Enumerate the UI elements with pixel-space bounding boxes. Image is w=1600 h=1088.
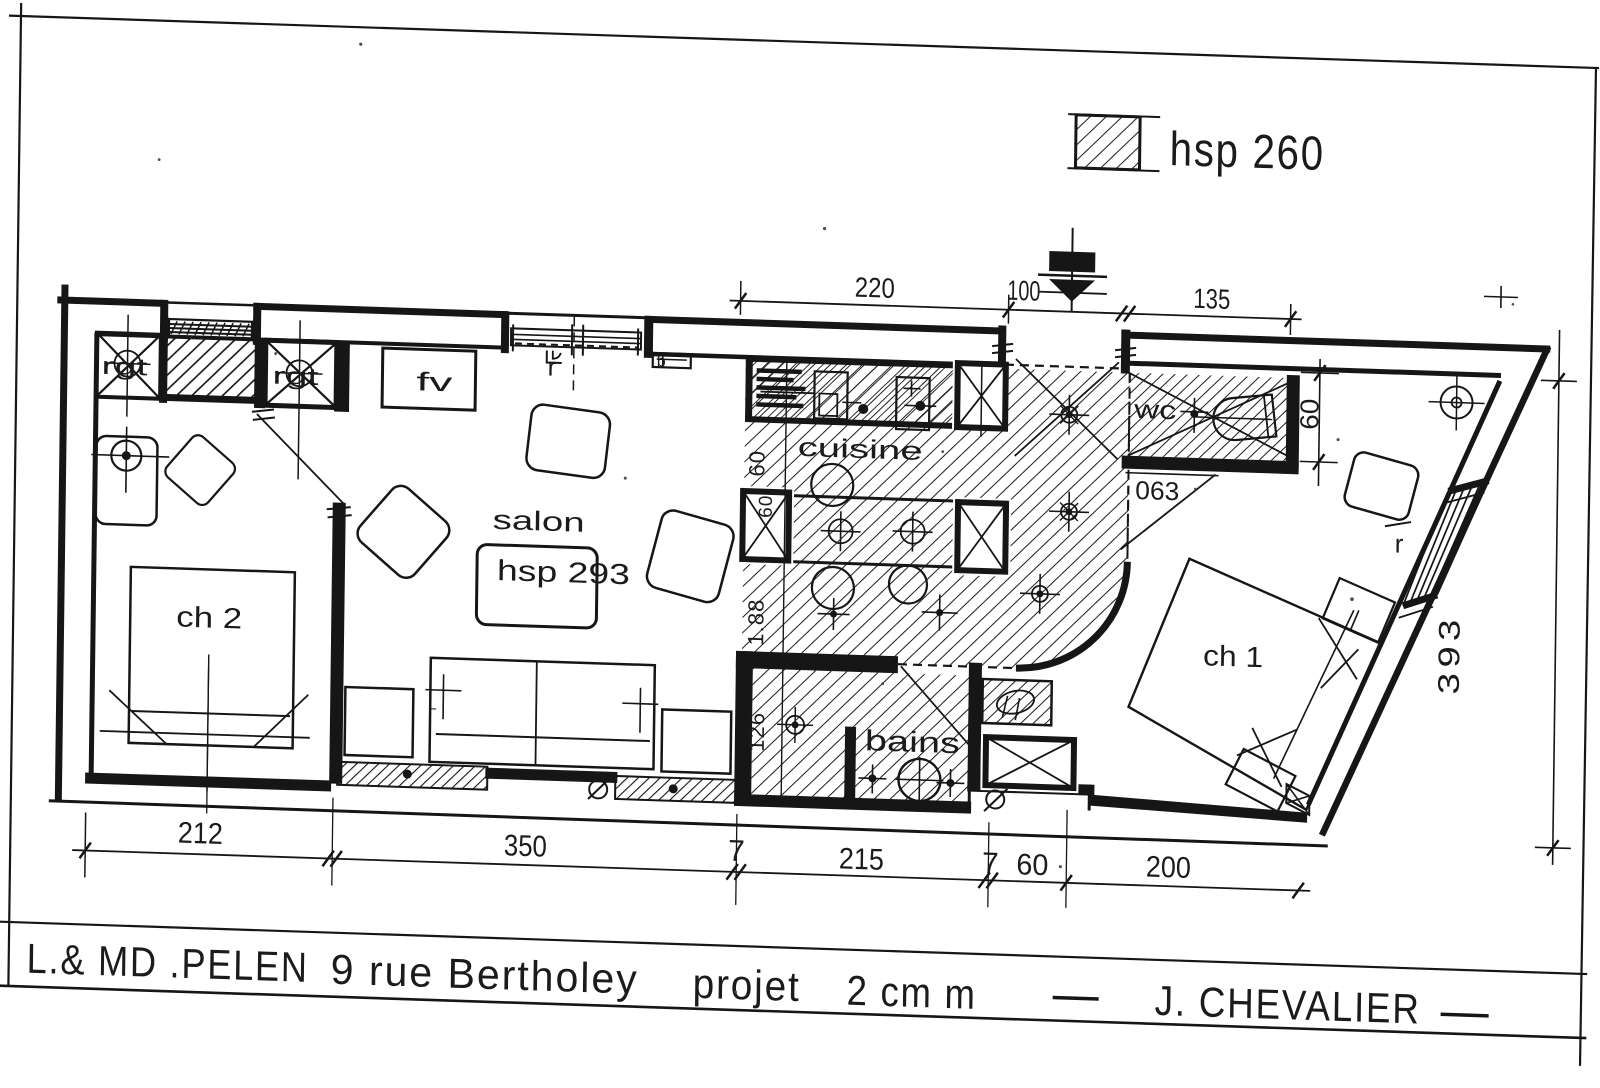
svg-text:60: 60 [1016,848,1048,882]
svg-text:1.88: 1.88 [743,598,769,646]
svg-text:ch 2: ch 2 [176,601,242,635]
svg-text:salon: salon [492,505,584,538]
svg-text:063: 063 [1135,475,1179,506]
svg-text:b: b [657,353,666,370]
svg-text:215: 215 [839,842,884,876]
svg-text:60: 60 [1294,398,1324,430]
svg-text:60: 60 [756,494,777,518]
svg-text:220: 220 [855,272,895,304]
svg-text:projet: projet [692,960,801,1011]
svg-text:212: 212 [178,817,223,851]
svg-text:126: 126 [744,711,770,752]
svg-text:100: 100 [1007,275,1040,307]
svg-text:r: r [1395,529,1406,559]
svg-text:393: 393 [1433,614,1467,695]
svg-text:hsp 260: hsp 260 [1169,123,1325,181]
svg-text:cuisine: cuisine [798,432,923,466]
svg-text:rgt: rgt [272,362,319,391]
svg-text:fv: fv [416,366,452,397]
svg-text:60: 60 [744,450,769,477]
svg-text:200: 200 [1146,850,1191,884]
svg-text:7: 7 [728,835,745,869]
svg-text:7: 7 [982,847,999,881]
svg-text:135: 135 [1193,283,1230,315]
svg-text:rgt: rgt [101,353,148,382]
svg-text:J. CHEVALIER: J. CHEVALIER [1154,977,1421,1033]
svg-text:ch 1: ch 1 [1203,640,1263,674]
svg-text:bains: bains [865,725,960,760]
svg-text:350: 350 [504,829,547,863]
svg-text:hsp 293: hsp 293 [497,555,630,591]
svg-text:2 cm m: 2 cm m [846,967,977,1018]
svg-text:wc: wc [1133,394,1177,425]
svg-text:L.& MD .PELEN: L.& MD .PELEN [26,935,309,991]
